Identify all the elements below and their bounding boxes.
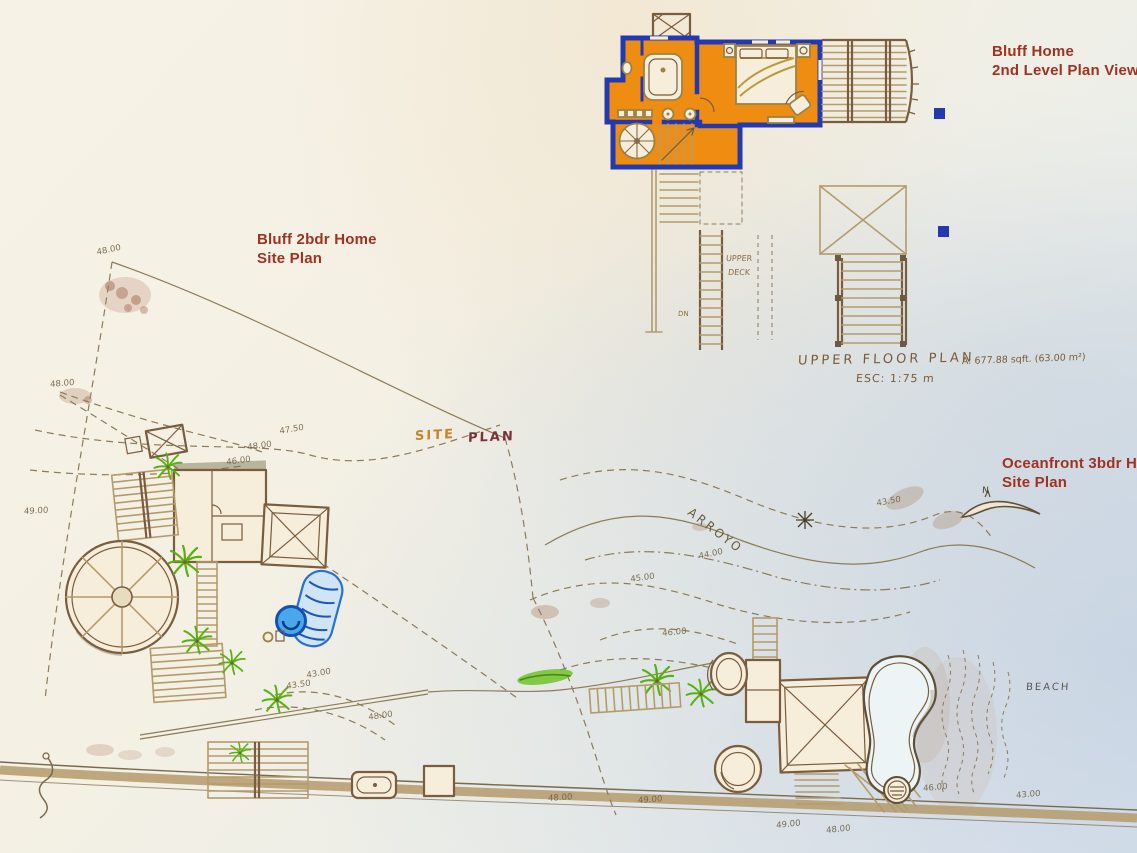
round-palapa bbox=[66, 541, 178, 653]
main-hip-roof bbox=[777, 677, 872, 772]
bottom-deck bbox=[208, 742, 308, 798]
upper-deck-left bbox=[112, 469, 179, 541]
elevation-label: 48.00 bbox=[50, 378, 75, 390]
site-word-label: SITE bbox=[415, 427, 455, 444]
upper-deck-label-line2: DECK bbox=[728, 268, 751, 277]
plan-drawing bbox=[0, 0, 1137, 853]
left-annex bbox=[746, 660, 780, 722]
elevation-label: 49.00 bbox=[638, 794, 662, 806]
oceanfront-house bbox=[589, 618, 936, 812]
north-label: N bbox=[982, 486, 989, 496]
tub-structure bbox=[352, 772, 396, 798]
elevation-label: 49.00 bbox=[24, 506, 49, 517]
spiral-stair bbox=[620, 124, 655, 159]
blue-marker-upper bbox=[934, 108, 945, 119]
blue-marker-lower bbox=[938, 226, 949, 237]
upper-deck-label-line1: UPPER bbox=[726, 254, 753, 263]
pavilion-hip-roof bbox=[261, 504, 328, 567]
right-stair bbox=[835, 255, 906, 347]
upper-deck-stair bbox=[700, 230, 772, 350]
boardwalk bbox=[197, 562, 217, 646]
entry-ladder bbox=[753, 618, 777, 662]
bluff-site-title-line2: Site Plan bbox=[257, 249, 377, 268]
oceanfront-title-line1: Oceanfront 3bdr Ho bbox=[1002, 454, 1137, 473]
lower-deck-left bbox=[150, 643, 226, 702]
survey-star-icon bbox=[796, 511, 814, 529]
upper-floor-plan-label: UPPER FLOOR PLAN bbox=[798, 350, 975, 368]
bluff-site-title-line1: Bluff 2bdr Home bbox=[257, 230, 377, 249]
bluff-home-title-line1: Bluff Home bbox=[992, 42, 1137, 61]
section-pole bbox=[646, 170, 662, 332]
bluff-home-title-line2: 2nd Level Plan View bbox=[992, 61, 1137, 80]
entry-steps bbox=[660, 172, 742, 224]
beach-label: BEACH bbox=[1026, 682, 1071, 693]
architectural-sketch-scan: Bluff Home 2nd Level Plan View Bluff 2bd… bbox=[0, 0, 1137, 853]
bathtub bbox=[644, 54, 682, 100]
bench bbox=[768, 117, 794, 123]
dn-label: DN bbox=[678, 310, 689, 318]
oceanfront-title-line2: Site Plan bbox=[1002, 473, 1137, 492]
bluff-home-title: Bluff Home 2nd Level Plan View bbox=[992, 42, 1137, 80]
north-arrow-icon bbox=[962, 491, 1040, 517]
contour-lines-left bbox=[30, 262, 533, 740]
bed bbox=[736, 46, 796, 104]
small-outbuilding bbox=[424, 766, 454, 796]
toilet bbox=[623, 62, 632, 74]
right-joist-deck bbox=[822, 40, 919, 122]
elevation-label: 48.00 bbox=[548, 792, 572, 804]
elevation-label: 46.00 bbox=[923, 782, 948, 794]
terrace-x-square bbox=[820, 186, 906, 254]
bluff-house-cluster bbox=[66, 425, 454, 798]
oceanfront-title: Oceanfront 3bdr Ho Site Plan bbox=[1002, 454, 1137, 492]
south-stair-hatch bbox=[795, 774, 840, 804]
pool-spa bbox=[884, 777, 910, 803]
plan-word-label: PLAN bbox=[468, 429, 515, 446]
elevation-label: 43.00 bbox=[1016, 789, 1041, 801]
round-tower bbox=[715, 746, 761, 792]
upper-floor-plan-drawing bbox=[607, 14, 820, 167]
scale-label: ESC: 1:75 m bbox=[856, 372, 936, 385]
bluff-site-title: Bluff 2bdr Home Site Plan bbox=[257, 230, 377, 268]
